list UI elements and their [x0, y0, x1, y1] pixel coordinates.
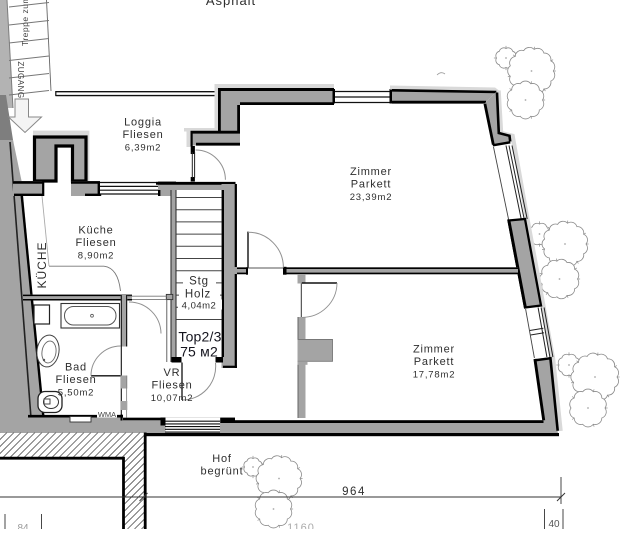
svg-text:Parkett: Parkett [414, 356, 454, 368]
svg-text:6,39m2: 6,39m2 [125, 143, 162, 154]
svg-text:Fliesen: Fliesen [75, 237, 116, 249]
svg-text:84: 84 [17, 523, 29, 529]
svg-text:75 м2: 75 м2 [180, 344, 218, 360]
svg-text:begrünt: begrünt [201, 466, 244, 478]
svg-text:Treppe zum: Treppe zum [20, 0, 30, 46]
svg-text:23,39m2: 23,39m2 [350, 192, 393, 203]
svg-text:Zimmer: Zimmer [350, 166, 392, 178]
svg-text:ZUGANG: ZUGANG [16, 61, 25, 98]
svg-text:4,04m2: 4,04m2 [182, 301, 217, 312]
svg-text:Fliesen: Fliesen [55, 374, 96, 386]
svg-text:40: 40 [548, 519, 560, 529]
svg-text:17,78m2: 17,78m2 [413, 370, 456, 381]
svg-text:Zimmer: Zimmer [413, 344, 455, 356]
svg-text:Loggia: Loggia [124, 117, 162, 129]
svg-text:Küche: Küche [78, 225, 113, 237]
svg-text:8,90m2: 8,90m2 [78, 251, 115, 262]
svg-text:1160: 1160 [287, 522, 315, 529]
svg-text:Parkett: Parkett [351, 179, 391, 191]
svg-text:WMA: WMA [98, 410, 116, 419]
svg-text:Asphalt: Asphalt [206, 0, 256, 8]
svg-text:Bad: Bad [65, 362, 87, 374]
svg-text:Top2/3: Top2/3 [178, 329, 221, 345]
svg-text:Fliesen: Fliesen [122, 129, 163, 141]
svg-text:KÜCHE: KÜCHE [35, 241, 49, 288]
svg-text:Fliesen: Fliesen [151, 380, 192, 392]
svg-text:VR: VR [164, 367, 181, 379]
svg-text:964: 964 [342, 486, 366, 498]
svg-text:10,07m2: 10,07m2 [151, 393, 194, 404]
svg-text:5,50m2: 5,50m2 [58, 388, 95, 399]
svg-text:Holz: Holz [185, 289, 211, 301]
svg-text:Stg: Stg [189, 276, 209, 288]
svg-text:Hof: Hof [212, 453, 232, 465]
